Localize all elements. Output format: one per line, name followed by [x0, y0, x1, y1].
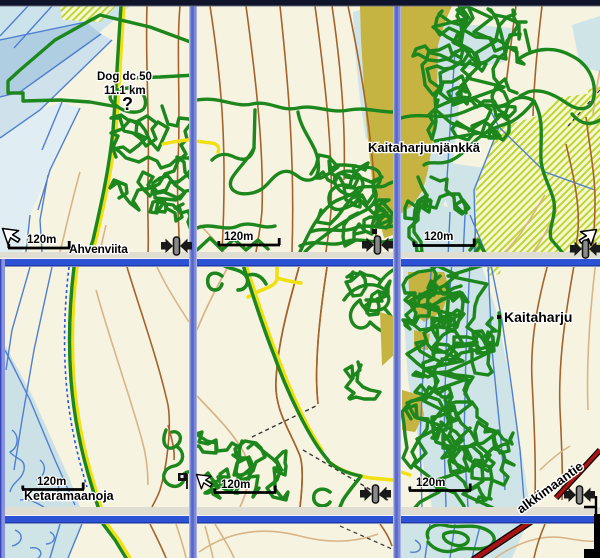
svg-text:120m: 120m — [416, 477, 445, 489]
svg-text:Dog dc 50: Dog dc 50 — [97, 71, 152, 83]
svg-text:120m: 120m — [37, 476, 66, 488]
svg-text:Kaitaharjunjänkkä: Kaitaharjunjänkkä — [368, 140, 481, 155]
svg-text:120m: 120m — [424, 231, 453, 243]
svg-text:120m: 120m — [27, 234, 56, 246]
svg-text:Ahvenviita: Ahvenviita — [69, 242, 128, 256]
svg-text:Ketaramaanoja: Ketaramaanoja — [24, 489, 115, 503]
svg-text:120m: 120m — [224, 231, 253, 243]
svg-text:Kaitaharju: Kaitaharju — [504, 309, 572, 325]
svg-text:120m: 120m — [221, 479, 250, 491]
svg-text:?: ? — [122, 94, 133, 114]
